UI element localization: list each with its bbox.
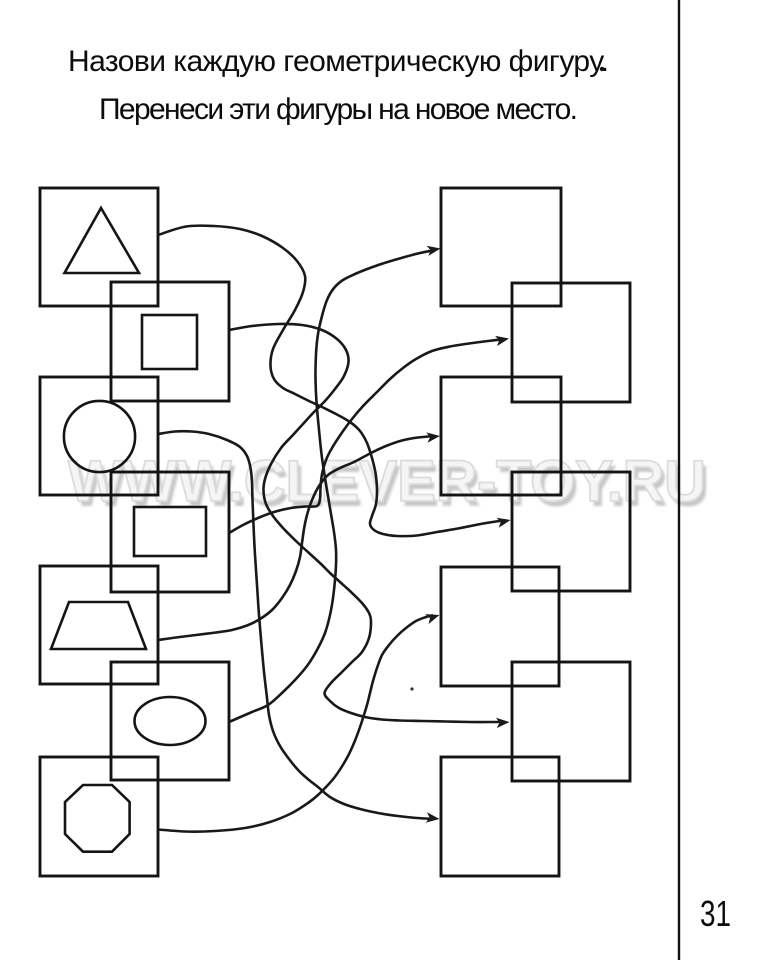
svg-text:WWW.CLEVER-TOY.RU: WWW.CLEVER-TOY.RU	[68, 449, 706, 514]
svg-text:Назови каждую геометрическую ф: Назови каждую геометрическую фигуру.	[68, 45, 609, 78]
svg-text:31: 31	[700, 893, 731, 934]
svg-text:Перенеси эти фигуры на новое м: Перенеси эти фигуры на новое место.	[99, 93, 578, 126]
